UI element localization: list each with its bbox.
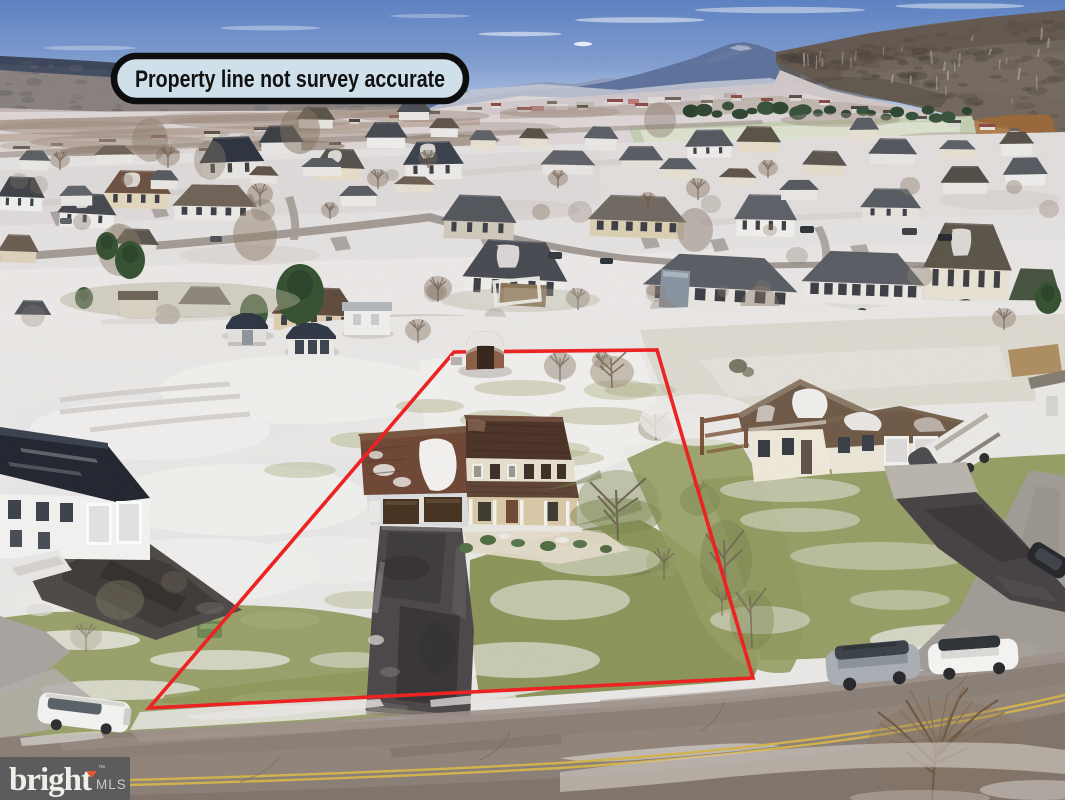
svg-text:MLS: MLS — [96, 777, 127, 792]
svg-text:™: ™ — [98, 765, 105, 772]
svg-text:Property line not survey accur: Property line not survey accurate — [135, 66, 445, 93]
svg-text:bright: bright — [9, 762, 92, 798]
